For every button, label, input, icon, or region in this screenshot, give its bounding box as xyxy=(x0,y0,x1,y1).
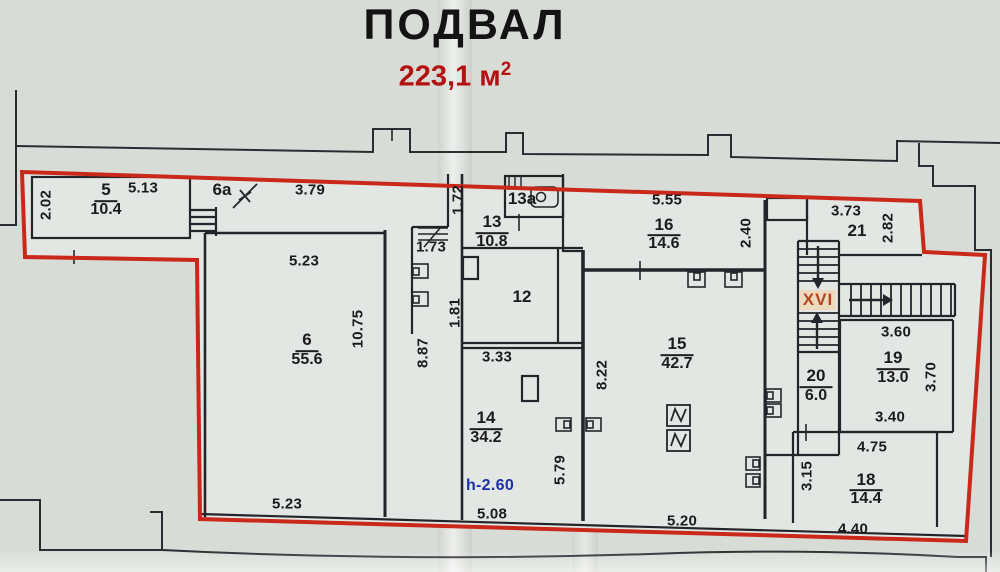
room-area: 10.4 xyxy=(90,202,121,219)
room-area: 13.0 xyxy=(877,370,908,387)
room-area: 42.7 xyxy=(661,356,692,373)
dimension-label: 10.75 xyxy=(350,310,367,349)
room-area: 55.6 xyxy=(291,352,322,369)
room-number: 6 xyxy=(295,331,318,352)
room-mark-21: 21 xyxy=(848,221,867,241)
room-number: 5 xyxy=(94,181,117,202)
dimension-label: 8.22 xyxy=(594,360,611,390)
room-label-6: 655.6 xyxy=(291,331,322,369)
dimension-label: 3.60 xyxy=(881,324,911,341)
room-area: 34.2 xyxy=(470,430,501,447)
room-mark-13a: 13a xyxy=(508,189,536,209)
dimension-label: 1.81 xyxy=(447,298,464,328)
room-label-13: 1310.8 xyxy=(476,213,509,251)
dimension-label: 3.73 xyxy=(831,203,861,220)
dimension-label: 5.20 xyxy=(667,513,697,530)
room-label-19: 1913.0 xyxy=(877,349,910,387)
dimension-label: 1.72 xyxy=(450,185,467,215)
dimension-label: 5.79 xyxy=(552,455,569,485)
total-area-label: 223,1 м2 xyxy=(0,59,910,94)
dimension-label: 5.13 xyxy=(128,180,158,197)
dimension-label: 5.08 xyxy=(477,506,507,523)
ceiling-height-note: h-2.60 xyxy=(466,477,514,495)
dimension-label: 2.82 xyxy=(880,213,897,243)
room-label-18: 1814.4 xyxy=(850,471,883,509)
room-number: 18 xyxy=(850,471,883,492)
room-number: 15 xyxy=(661,335,694,356)
dimension-label: 3.15 xyxy=(799,461,816,491)
dimension-label: 5.23 xyxy=(272,496,302,513)
room-label-15: 1542.7 xyxy=(661,335,694,373)
dimension-label: 3.70 xyxy=(923,362,940,392)
room-label-16: 1614.6 xyxy=(648,216,681,254)
dimension-label: 3.33 xyxy=(482,349,512,366)
room-number: 14 xyxy=(470,409,503,430)
room-label-14: 1434.2 xyxy=(470,409,503,447)
room-number: 19 xyxy=(877,349,910,370)
room-mark-12: 12 xyxy=(513,287,532,307)
dimension-label: 3.79 xyxy=(295,182,325,199)
room-label-20: 206.0 xyxy=(800,367,833,405)
dimension-label: 2.02 xyxy=(38,190,55,220)
dimension-label: 4.40 xyxy=(838,521,868,538)
area-unit: м xyxy=(479,61,500,93)
dimension-label: 5.55 xyxy=(652,192,682,209)
dimension-label: 2.40 xyxy=(738,218,755,248)
room-area: 14.4 xyxy=(850,492,881,509)
stairwell-mark: XVI xyxy=(800,290,836,310)
room-label-5: 510.4 xyxy=(90,181,121,219)
scanned-floor-plan-page: ПОДВАЛ 223,1 м2 510.4655.61310.81434.215… xyxy=(0,0,1000,572)
room-number: 16 xyxy=(648,216,681,237)
dimension-label: 4.75 xyxy=(857,439,887,456)
room-number: 13 xyxy=(476,213,509,234)
area-exponent: 2 xyxy=(501,59,512,80)
page-title: ПОДВАЛ xyxy=(0,1,930,50)
dimension-label: 5.23 xyxy=(289,253,319,270)
room-area: 10.8 xyxy=(476,234,507,251)
room-mark-6a: 6a xyxy=(213,180,232,200)
area-value: 223,1 xyxy=(399,61,472,93)
dimension-label: 1.73 xyxy=(416,239,446,256)
dimension-label: 3.40 xyxy=(875,409,905,426)
room-number: 20 xyxy=(800,367,833,388)
dimension-label: 8.87 xyxy=(415,338,432,368)
room-area: 6.0 xyxy=(805,388,827,405)
room-area: 14.6 xyxy=(648,237,679,254)
